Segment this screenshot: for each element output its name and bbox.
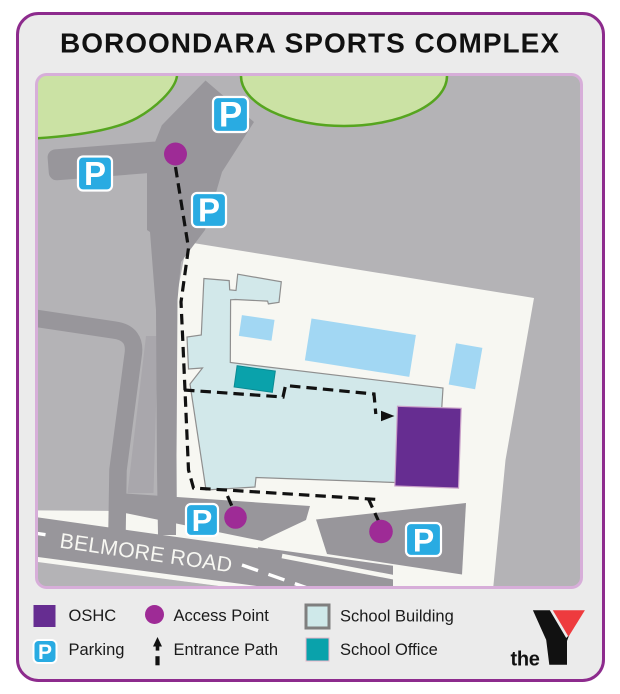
svg-text:P: P <box>219 96 242 135</box>
svg-text:P: P <box>198 192 220 229</box>
svg-text:Entrance Path: Entrance Path <box>174 641 279 659</box>
svg-text:OSHC: OSHC <box>69 607 117 625</box>
svg-text:BOROONDARA SPORTS COMPLEX: BOROONDARA SPORTS COMPLEX <box>60 28 560 59</box>
svg-text:P: P <box>84 155 106 192</box>
svg-text:the: the <box>511 649 540 671</box>
svg-text:P: P <box>192 503 213 538</box>
svg-text:School Office: School Office <box>340 641 438 659</box>
svg-text:P: P <box>38 641 52 664</box>
svg-text:Parking: Parking <box>69 641 125 659</box>
svg-text:P: P <box>413 523 434 559</box>
svg-text:Access Point: Access Point <box>174 607 270 625</box>
svg-text:School Building: School Building <box>340 608 454 626</box>
